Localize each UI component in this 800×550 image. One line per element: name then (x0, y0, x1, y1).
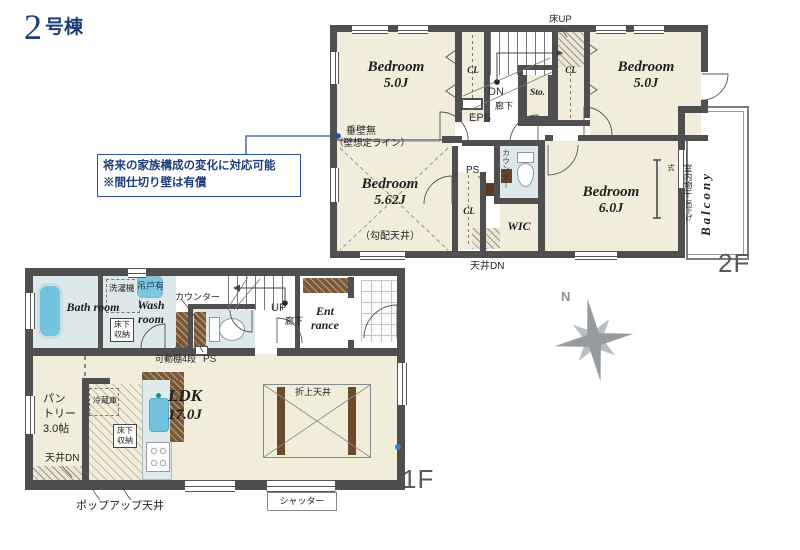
entrance-label: Ent rance (305, 304, 345, 333)
window (397, 363, 407, 405)
room-name: LDK (150, 386, 220, 406)
dn-label: DN (488, 86, 504, 99)
fridge-label: 冷蔵庫 (93, 396, 117, 405)
window (634, 25, 664, 34)
floor-up-label: 床UP (549, 15, 572, 26)
wall (348, 340, 354, 350)
window (330, 52, 339, 84)
hall-label-1f: 廊下 (285, 316, 303, 326)
compass-main-star (548, 292, 640, 387)
hose-bib (395, 444, 401, 450)
wall (584, 25, 590, 118)
floor1-plan: 床下収納 床下収納 折上天井 (25, 268, 405, 490)
wall (188, 304, 193, 354)
wall (82, 378, 110, 384)
pantry-line1: パン (43, 392, 76, 407)
wall (442, 136, 462, 143)
pantry-opening-line (84, 356, 86, 378)
wall (494, 146, 500, 202)
movable-shelf-label: 可動棚4段 (155, 354, 196, 364)
page-title: 2号棟 (24, 6, 83, 48)
ceiling-beam (348, 387, 356, 455)
wall (678, 106, 708, 113)
bedroom-nw-label: Bedroom 5.0J (340, 58, 452, 93)
counter-label-2f: カウンター (501, 149, 510, 191)
ceiling-dn-label-2f: 天井DN (470, 261, 504, 273)
storage-label: Sto. (523, 88, 552, 99)
bedroom-sw-label: Bedroom 5.62J (334, 175, 446, 210)
hall-label-2f: 廊下 (495, 101, 513, 111)
sloped-ceiling-note: （勾配天井） (334, 231, 446, 243)
compass-north-label: N (561, 289, 570, 304)
note-box: 将来の家族構成の変化に対応可能 ※間仕切り壁は有償 (97, 154, 301, 197)
wall (295, 276, 300, 350)
stove (146, 442, 170, 472)
bath-label: Bath room (65, 300, 121, 314)
hanging-cabinet-label: 吊戸有 (137, 281, 164, 291)
door-opening (701, 72, 708, 100)
title-number: 2 (24, 7, 42, 47)
wall (480, 172, 486, 251)
shoe-cabinet (303, 278, 348, 293)
underfloor-storage-kitchen: 床下収納 (113, 424, 137, 448)
wall (545, 135, 553, 141)
room-area: 5.0J (340, 76, 452, 93)
pantry-label: パン トリー 3.0帖 (43, 392, 76, 437)
wall (538, 146, 545, 258)
wall (25, 268, 405, 276)
window (128, 268, 146, 278)
window (25, 396, 35, 434)
closet-sw-label: CL (458, 206, 480, 217)
room-name: Bedroom (340, 58, 452, 76)
ceiling-dn-label-1f: 天井DN (45, 453, 79, 465)
floor2-tag: 2F (718, 248, 750, 279)
floor-plan-page: 2号棟 Balcony (0, 0, 800, 550)
room-area: 5.0J (592, 76, 700, 93)
window (575, 251, 617, 260)
counter-label-1f: カウンター (175, 292, 220, 302)
wall (33, 348, 255, 356)
title-suffix: 号棟 (45, 17, 83, 38)
note-line1: 将来の家族構成の変化に対応可能 (103, 158, 295, 175)
eps-shaft (461, 98, 483, 110)
wall (462, 140, 545, 146)
floor-up-hatch (558, 32, 584, 67)
shutter-label: シャッター (268, 496, 336, 506)
ceiling-dn-hatch-2f (472, 228, 500, 249)
wall (452, 146, 458, 258)
window (25, 293, 35, 329)
toilet-counter-1f (194, 312, 206, 348)
shutter-box: シャッター (267, 492, 337, 511)
wall (82, 378, 89, 480)
up-label: UP (271, 302, 286, 315)
wall (193, 304, 255, 309)
ps-label-1f: PS (203, 354, 216, 366)
window (267, 480, 335, 492)
ldk-label: LDK 17.0J (150, 386, 220, 424)
room-name: Bedroom (592, 58, 700, 76)
window (596, 25, 626, 34)
closet-ne-label: CL (558, 65, 584, 76)
wall (518, 120, 590, 126)
wash-label: Wash room (125, 298, 177, 327)
window (185, 480, 235, 492)
note-line2: ※間仕切り壁は有償 (103, 175, 295, 192)
drying-label: 室内物干吊下げ式 (661, 164, 697, 224)
popup-ceiling-label: ポップアップ天井 (76, 500, 164, 513)
drying-main: 室内物干 (683, 164, 693, 198)
closet-ne (558, 32, 584, 125)
wic-label: WIC (500, 219, 538, 233)
counter-bar-top (142, 372, 184, 380)
room-name: Bedroom (334, 175, 446, 193)
ceiling-beam (277, 387, 285, 455)
closet-nw-label: CL (462, 65, 484, 76)
coffered-ceiling-label: 折上天井 (293, 387, 333, 397)
room-area: 17.0J (150, 406, 220, 424)
ps-label-2f: PS (466, 165, 479, 177)
pantry-line2: トリー (43, 407, 76, 422)
window (398, 25, 428, 34)
washer-label: 洗濯機 (109, 284, 135, 294)
wall (348, 277, 354, 298)
room-area: 6.0J (552, 201, 670, 218)
callout-main: 垂壁無 (346, 126, 376, 138)
eps-label: EPS (469, 112, 491, 125)
bedroom-ne-label: Bedroom 5.0J (592, 58, 700, 93)
toilet-bowl-1f (219, 318, 245, 341)
wall (578, 135, 708, 141)
floor1-tag: 1F (402, 464, 434, 495)
pantry-line3: 3.0帖 (43, 422, 76, 437)
porch (361, 280, 401, 342)
wall (518, 65, 558, 70)
wall (455, 25, 462, 122)
ceiling-dn-hatch-1f (30, 466, 85, 480)
wall (484, 25, 490, 122)
callout-sub: （壁想定ライン） (334, 139, 410, 150)
window (352, 25, 388, 34)
compass-rose (540, 282, 650, 394)
note-leader-line (246, 136, 334, 154)
window (360, 251, 405, 260)
bedroom-se-label: Bedroom 6.0J (552, 183, 670, 218)
coffered-ceiling-box: 折上天井 (263, 384, 371, 458)
room-area: 5.62J (334, 193, 446, 210)
room-name: Bedroom (552, 183, 670, 201)
bathtub (37, 283, 63, 339)
toilet-tank-2f (517, 152, 534, 163)
